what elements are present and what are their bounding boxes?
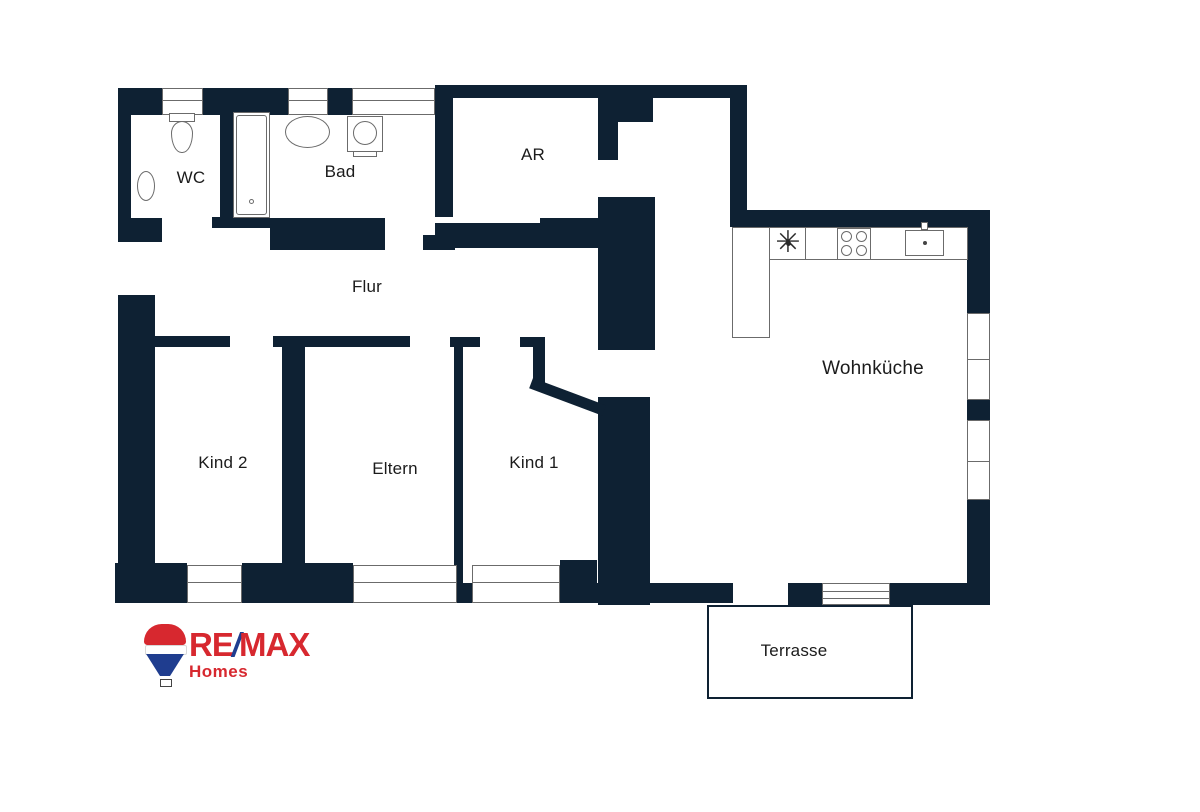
wall-segment xyxy=(967,400,990,420)
wall-segment xyxy=(328,88,352,115)
wall-segment xyxy=(598,197,655,350)
star-fixture: ✳ xyxy=(771,226,805,260)
wall-segment xyxy=(118,218,162,242)
wall-segment xyxy=(220,108,233,218)
wall-segment xyxy=(967,210,990,313)
wall-segment xyxy=(618,85,747,98)
wall-segment xyxy=(788,583,822,605)
wall-segment xyxy=(203,88,288,115)
wall-segment-diagonal xyxy=(529,378,606,416)
wall-segment xyxy=(533,347,545,383)
wall-segment xyxy=(730,98,747,215)
window xyxy=(288,88,328,115)
window xyxy=(162,88,203,115)
balloon-cone xyxy=(144,654,186,676)
room-label-eltern: Eltern xyxy=(372,459,418,479)
terrace-door xyxy=(822,583,890,605)
wall-segment xyxy=(520,337,545,347)
wall-segment xyxy=(435,85,453,217)
wall-segment xyxy=(118,295,155,603)
wc-sink-fixture xyxy=(137,171,155,201)
wall-segment xyxy=(118,88,162,115)
wall-segment xyxy=(153,336,230,347)
bathtub-fixture xyxy=(233,112,270,218)
room-label-bad: Bad xyxy=(325,162,356,182)
floorplan-page: ✳WCBadARFlurKind 2ElternKind 1WohnkücheT… xyxy=(0,0,1200,812)
wall-segment xyxy=(273,336,410,347)
kitchen-sink-fixture xyxy=(905,230,944,256)
room-label-flur: Flur xyxy=(352,277,382,297)
wall-segment xyxy=(540,218,598,248)
window xyxy=(967,420,990,500)
brand-name: RE/MAX xyxy=(189,630,309,660)
wall-segment xyxy=(450,337,480,347)
kitchen-counter xyxy=(732,227,770,338)
wall-segment xyxy=(115,563,187,603)
wall-segment xyxy=(454,347,463,583)
counter-divider xyxy=(805,227,806,260)
wall-segment xyxy=(212,217,270,228)
wall-segment xyxy=(598,85,618,160)
wall-segment xyxy=(618,95,653,122)
room-label-ar: AR xyxy=(521,145,545,165)
wall-segment xyxy=(270,218,385,250)
room-label-kind1: Kind 1 xyxy=(509,453,558,473)
wall-segment xyxy=(242,563,353,603)
balloon-band: RE/MAX xyxy=(145,645,187,655)
stove-fixture xyxy=(837,228,871,260)
wall-segment xyxy=(560,560,597,603)
brand-homes: Homes xyxy=(189,662,309,682)
balloon-dome xyxy=(144,624,186,645)
remax-balloon-icon: RE/MAX xyxy=(144,622,186,688)
brand-re: RE xyxy=(189,626,233,663)
room-label-terrasse: Terrasse xyxy=(761,641,828,661)
wall-segment xyxy=(282,347,305,563)
room-label-kind2: Kind 2 xyxy=(198,453,247,473)
remax-wordmark: RE/MAX Homes xyxy=(189,622,309,682)
remax-logo: RE/MAX RE/MAX Homes xyxy=(144,622,309,688)
bad-sink-fixture xyxy=(285,116,330,148)
window xyxy=(352,88,435,115)
window xyxy=(472,565,560,603)
wall-segment xyxy=(598,397,650,605)
balloon-basket xyxy=(160,679,172,687)
brand-max: MAX xyxy=(239,626,309,663)
window xyxy=(187,565,242,603)
toilet-fixture xyxy=(169,113,195,155)
floor-plan-canvas: ✳WCBadARFlurKind 2ElternKind 1WohnkücheT… xyxy=(0,0,1200,812)
room-label-wc: WC xyxy=(177,168,206,188)
wall-segment xyxy=(730,210,985,227)
window xyxy=(967,313,990,400)
wall-segment xyxy=(890,583,990,605)
wall-segment xyxy=(435,85,618,98)
washer-fixture xyxy=(347,116,383,158)
room-label-wohnkueche: Wohnküche xyxy=(822,358,924,380)
window xyxy=(353,565,457,603)
